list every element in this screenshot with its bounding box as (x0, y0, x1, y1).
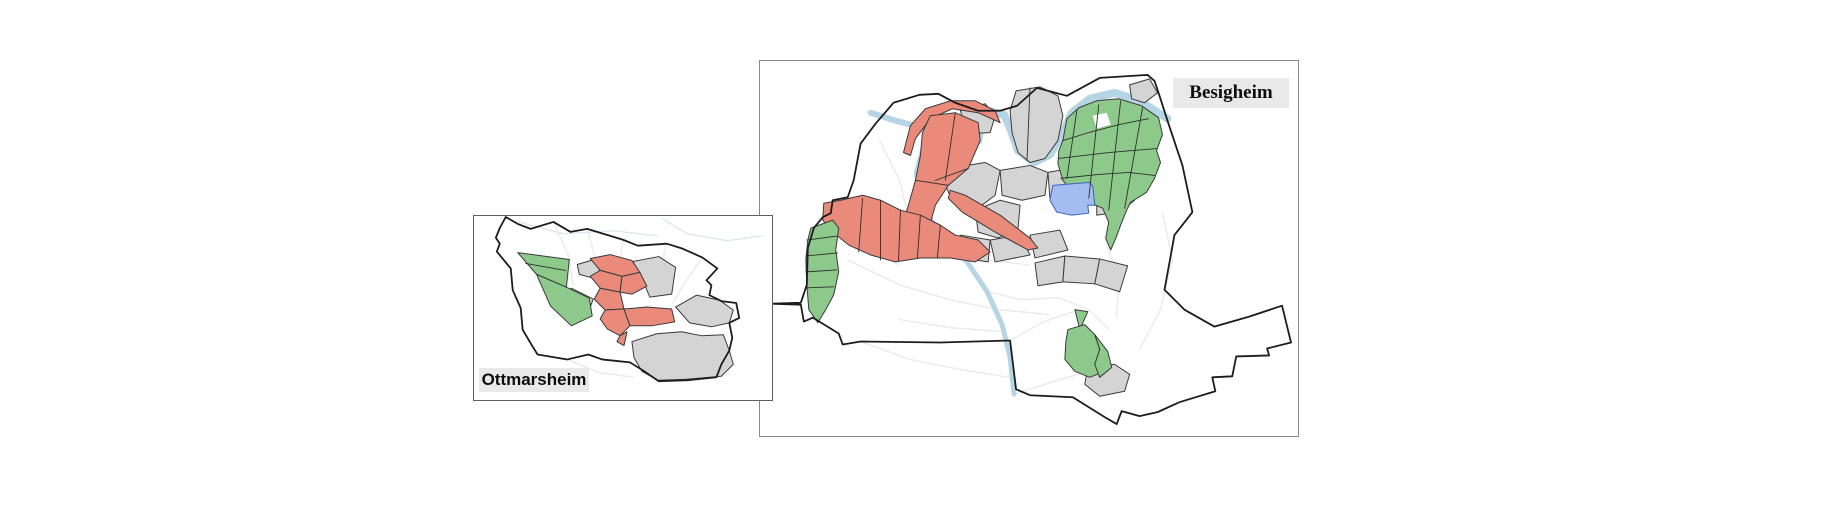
road-line (1010, 312, 1074, 341)
figure-canvas: Besigheim Ottmarsheim (0, 0, 1840, 531)
parcel-gray (1030, 230, 1068, 258)
road-line (1140, 212, 1173, 349)
besigheim-label: Besigheim (1173, 78, 1289, 108)
road-line (663, 219, 762, 241)
parcel-red (624, 307, 675, 326)
besigheim-label-text: Besigheim (1189, 82, 1272, 104)
road-line (848, 260, 1049, 315)
ottmarsheim-label: Ottmarsheim (479, 368, 589, 392)
parcel-gray (676, 295, 734, 327)
besigheim-panel: Besigheim (759, 60, 1299, 437)
besigheim-map-svg (760, 61, 1298, 436)
ottmarsheim-panel: Ottmarsheim (473, 215, 773, 401)
road-line (861, 342, 1009, 378)
parcel-gray (1095, 259, 1128, 292)
parcel-blue (1050, 182, 1095, 215)
parcel-gray (1035, 256, 1065, 286)
road-line (1014, 371, 1089, 394)
road-line (587, 229, 595, 258)
road-line (899, 320, 999, 332)
road-line (988, 292, 1059, 300)
parcel-gray (1063, 256, 1100, 284)
ottmarsheim-label-text: Ottmarsheim (482, 370, 587, 390)
parcel-gray (1130, 79, 1158, 103)
parcel-gray (1000, 165, 1048, 200)
